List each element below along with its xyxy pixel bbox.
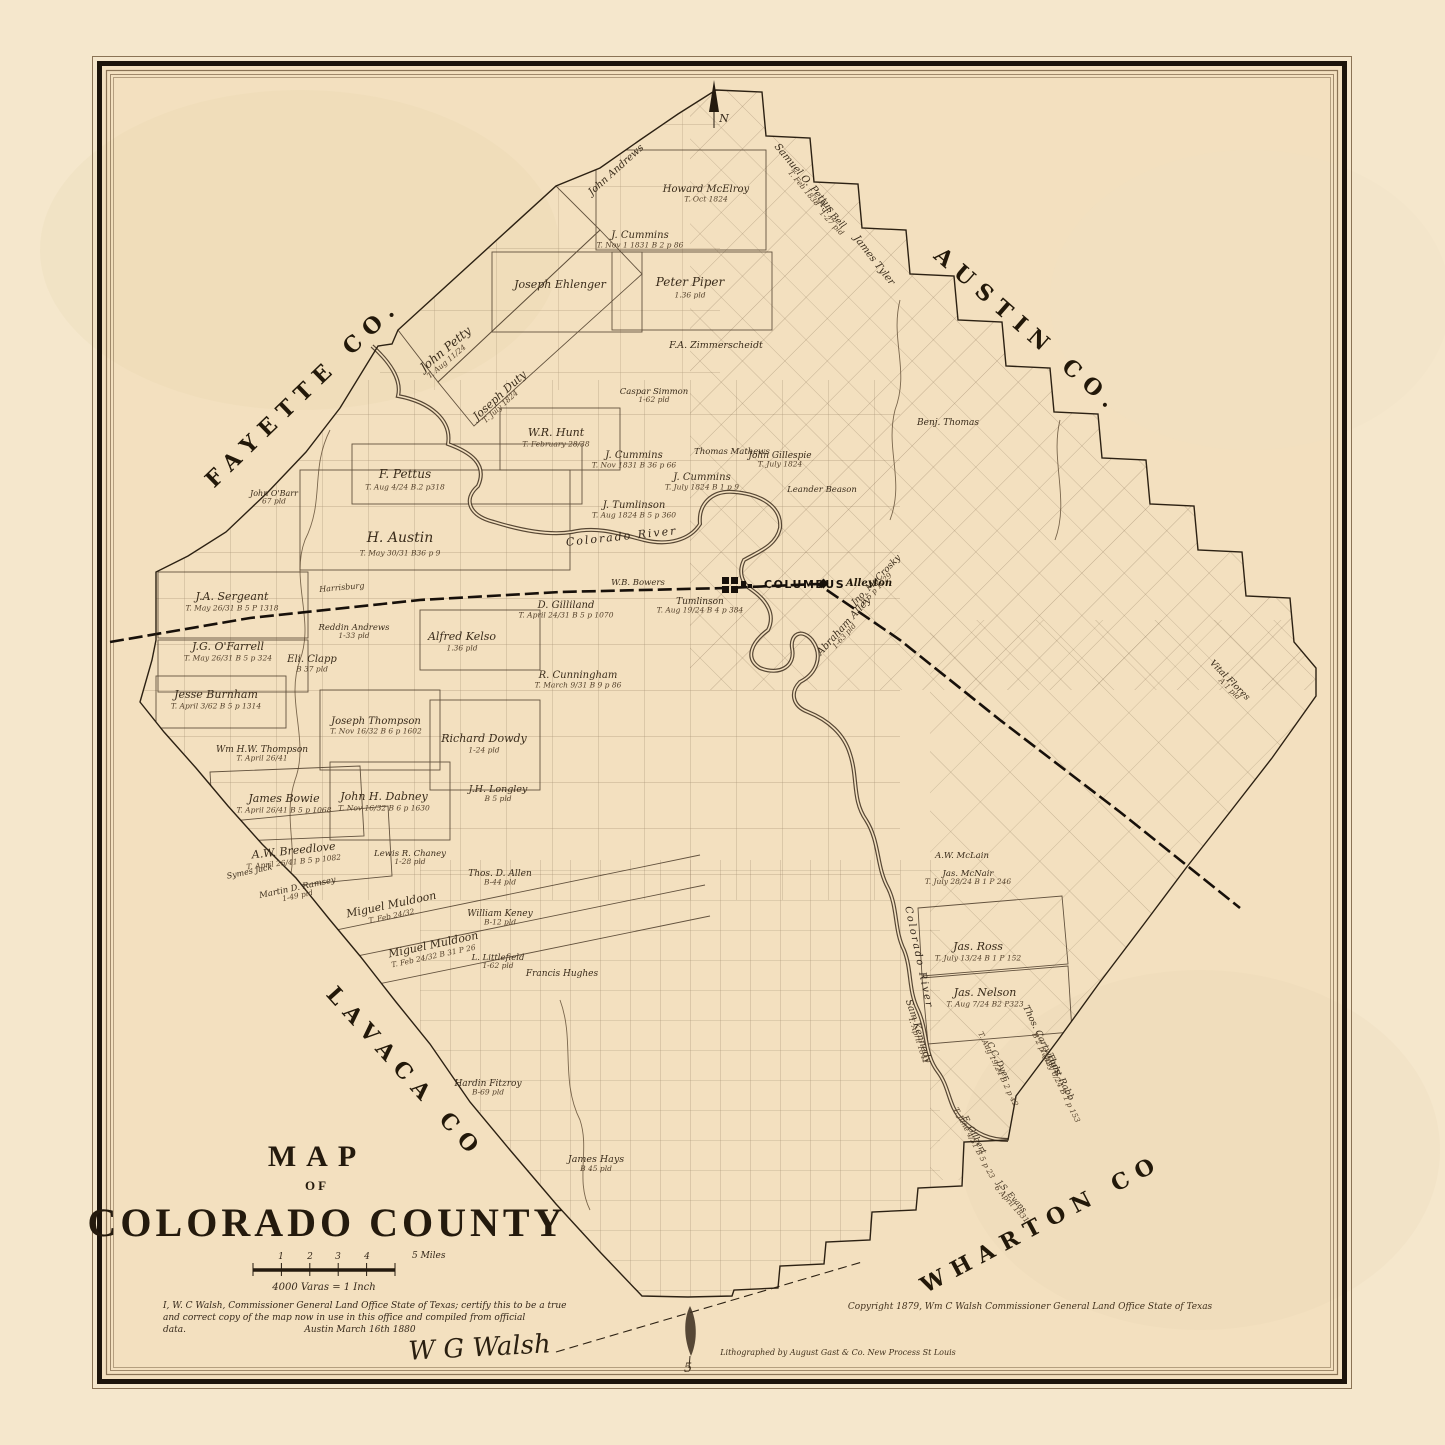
certification-dateline: Austin March 16th 1880 — [303, 1325, 416, 1335]
town-label-columbus: COLUMBUS — [764, 578, 845, 591]
parcel-sub-label: 1-62 pld — [638, 395, 669, 404]
parcel-sub-label: T. Aug 19/24 B 4 p 384 — [657, 606, 744, 615]
parcel-sub-label: T. Nov 16/32 B 6 p 1602 — [330, 727, 422, 736]
parcel-sub-label: T. Nov 1 1831 B 2 p 86 — [597, 241, 684, 250]
parcel-label: F. Pettus — [378, 467, 431, 481]
copyright-line: Copyright 1879, Wm C Walsh Commissioner … — [848, 1302, 1213, 1312]
parcel-label: J.A. Sergeant — [194, 590, 269, 603]
parcel-sub-label: T. May 26/31 B 5 p 324 — [184, 653, 272, 662]
scale-tick-1: 1 — [278, 1252, 284, 1262]
certification-line1: I, W. C Walsh, Commissioner General Land… — [162, 1301, 566, 1311]
parcel-sub-label: T. April 26/41 — [236, 754, 287, 763]
parcel-label: Leander Beason — [786, 485, 857, 495]
parcel-label: R. Cunningham — [538, 670, 618, 681]
parcel-label: Jesse Burnham — [172, 688, 258, 701]
parcel-label: Richard Dowdy — [440, 732, 527, 745]
parcel-label: F.A. Zimmerscheidt — [668, 340, 763, 351]
map-title-line1: MAP — [268, 1140, 366, 1173]
parcel-sub-label: T. July 1824 — [758, 460, 803, 469]
parcel-label: W.R. Hunt — [528, 426, 585, 439]
parcel-sub-label: B 5 pld — [483, 794, 511, 803]
parcel-sub-label: T. February 28/38 — [522, 439, 590, 448]
scale-tick-2: 2 — [306, 1252, 313, 1262]
parcel-label: Jas. Nelson — [952, 986, 1017, 999]
parcel-label: A.W. McLain — [934, 851, 989, 861]
parcel-sub-label: T. April 24/31 B 5 p 1070 — [519, 611, 614, 620]
parcel-label: Howard McElroy — [662, 184, 750, 195]
scale-end-label: 5 Miles — [412, 1251, 446, 1261]
town-label-alleyton: Alleyton — [845, 578, 892, 589]
parcel-label: Jas. Ross — [951, 940, 1003, 953]
parcel-label: John H. Dabney — [338, 790, 428, 803]
parcel-sub-label: 67 pld — [262, 497, 286, 506]
parcel-label: James Bowie — [246, 792, 320, 805]
parcel-sub-label: B 45 pld — [579, 1164, 612, 1173]
parcel-sub-label: 1-62 pld — [482, 961, 513, 970]
parcel-label: W.B. Bowers — [611, 578, 665, 588]
parcel-sub-label: 1.36 pld — [446, 643, 477, 652]
certification-line2: and correct copy of the map now in use i… — [163, 1313, 525, 1323]
parcel-sub-label: T. July 13/24 B 1 P 152 — [935, 953, 1022, 962]
parcel-label: Joseph Ehlenger — [512, 278, 607, 291]
annotation-label: 5 — [684, 1361, 692, 1376]
parcel-sub-label: B 37 pld — [295, 665, 328, 674]
parcel-label: Joseph Thompson — [329, 716, 421, 727]
parcel-sub-label: T. July 1824 B 1 p 9 — [665, 483, 739, 492]
parcel-label: D. Gilliland — [537, 600, 595, 611]
colorado-county-map: N FAYETTE CO.AUSTIN CO.LAVACA COWHARTON … — [0, 0, 1445, 1445]
parcel-sub-label: T. May 26/31 B 5 P 1318 — [185, 603, 278, 612]
parcel-sub-label: T. April 26/41 B 5 p 1068 — [237, 805, 332, 814]
parcel-sub-label: B-69 pld — [471, 1088, 504, 1097]
parcel-sub-label: T. Aug 7/24 B2 P323 — [946, 999, 1024, 1008]
parcel-sub-label: T. April 3/62 B 5 p 1314 — [171, 701, 261, 710]
scale-varas-label: 4000 Varas = 1 Inch — [271, 1282, 375, 1293]
parcel-sub-label: B-12 pld — [483, 918, 516, 927]
parcel-sub-label: T. Aug 1824 B 5 p 360 — [592, 511, 676, 520]
parcel-label: Alfred Kelso — [427, 630, 496, 643]
map-sheet: N FAYETTE CO.AUSTIN CO.LAVACA COWHARTON … — [0, 0, 1445, 1445]
parcel-label: Francis Hughes — [525, 969, 599, 979]
parcel-sub-label: T. March 9/31 B 9 p 86 — [535, 681, 622, 690]
lithographer-line: Lithographed by August Gast & Co. New Pr… — [719, 1348, 956, 1357]
parcel-label: J.G. O'Farrell — [190, 640, 264, 653]
parcel-sub-label: 1-33 pld — [338, 631, 369, 640]
map-title-line2: OF — [305, 1178, 329, 1193]
scale-tick-3: 3 — [335, 1252, 341, 1262]
parcel-label: Peter Piper — [655, 275, 726, 289]
map-title-line3: COLORADO COUNTY — [88, 1200, 567, 1245]
parcel-sub-label: T. July 28/24 B 1 P 246 — [925, 877, 1012, 886]
parcel-sub-label: 1.36 pld — [674, 290, 705, 299]
scale-tick-4: 4 — [363, 1252, 370, 1262]
parcel-sub-label: T. Nov 1831 B 36 p 66 — [592, 461, 677, 470]
parcel-label: Eli. Clapp — [286, 654, 337, 665]
parcel-label: J. Cummins — [603, 450, 662, 461]
parcel-label: J. Cummins — [609, 230, 668, 241]
certification-line3: data. — [163, 1325, 186, 1335]
parcel-sub-label: B-44 pld — [483, 878, 516, 887]
parcel-label: Benj. Thomas — [916, 418, 979, 428]
parcel-sub-label: 1-28 pld — [394, 857, 425, 866]
parcel-label: J. Cummins — [671, 472, 730, 483]
parcel-label: J. Tumlinson — [601, 500, 666, 511]
parcel-label: H. Austin — [366, 530, 434, 546]
parcel-sub-label: T. Nov 16/32 B 6 p 1630 — [338, 803, 430, 812]
parcel-sub-label: 1-24 pld — [468, 745, 499, 754]
north-arrow-label: N — [718, 112, 729, 125]
parcel-sub-label: T. Oct 1824 — [684, 195, 728, 204]
parcel-sub-label: T. May 30/31 B36 p 9 — [360, 548, 441, 557]
parcel-sub-label: T. Aug 4/24 B.2 p318 — [365, 482, 445, 491]
